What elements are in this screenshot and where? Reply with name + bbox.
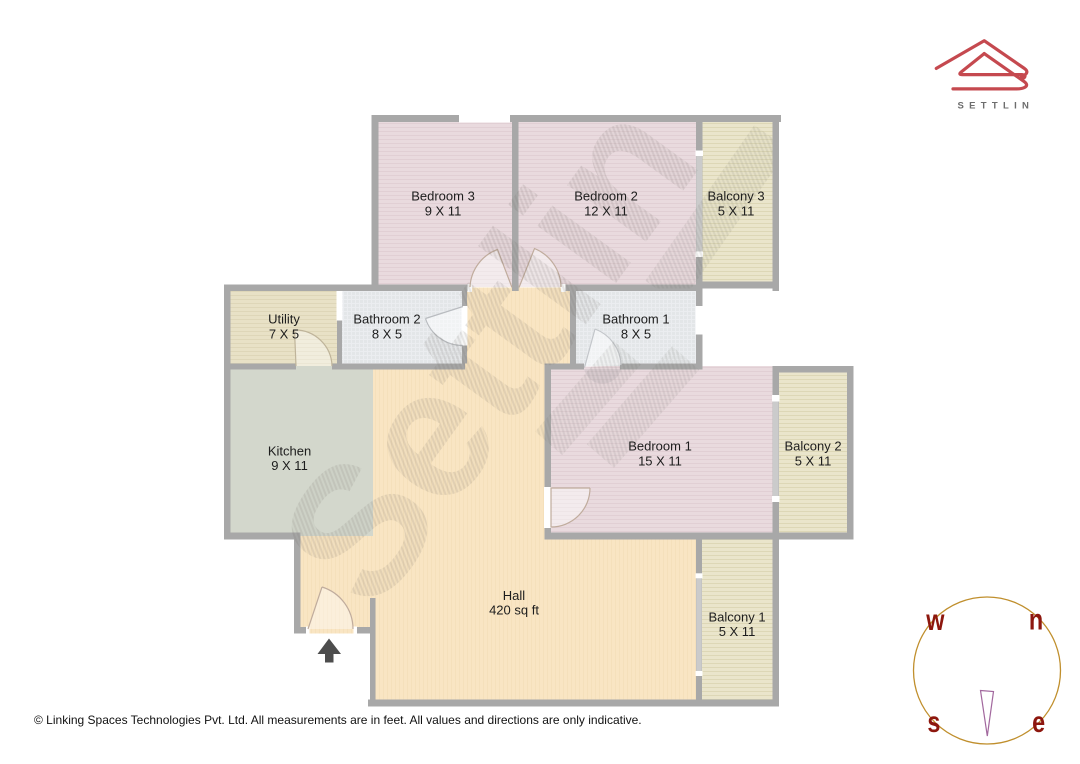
svg-text:5 X 11: 5 X 11 <box>718 204 755 219</box>
svg-text:Kitchen: Kitchen <box>268 444 311 459</box>
svg-text:Hall: Hall <box>503 588 526 603</box>
svg-text:420 sq ft: 420 sq ft <box>489 603 539 618</box>
svg-text:7 X 5: 7 X 5 <box>269 327 299 342</box>
svg-text:Utility: Utility <box>268 312 300 327</box>
svg-text:9 X 11: 9 X 11 <box>425 204 462 219</box>
svg-text:w: w <box>925 603 944 636</box>
svg-text:Bedroom 3: Bedroom 3 <box>411 189 475 204</box>
svg-text:© Linking Spaces Technologies: © Linking Spaces Technologies Pvt. Ltd. … <box>34 713 642 727</box>
svg-text:8 X 5: 8 X 5 <box>621 327 651 342</box>
svg-text:Balcony 3: Balcony 3 <box>707 189 764 204</box>
svg-text:5 X 11: 5 X 11 <box>795 454 832 469</box>
svg-text:Bedroom 1: Bedroom 1 <box>628 439 692 454</box>
svg-text:Bathroom 2: Bathroom 2 <box>353 312 420 327</box>
svg-text:s: s <box>927 705 940 738</box>
svg-text:n: n <box>1029 603 1043 636</box>
svg-text:12 X 11: 12 X 11 <box>584 204 628 219</box>
svg-text:5 X 11: 5 X 11 <box>719 624 756 639</box>
svg-text:Balcony 1: Balcony 1 <box>708 610 765 625</box>
svg-text:Balcony 2: Balcony 2 <box>784 439 841 454</box>
svg-text:e: e <box>1032 705 1045 738</box>
svg-text:9 X 11: 9 X 11 <box>271 458 308 473</box>
svg-text:15 X 11: 15 X 11 <box>638 454 682 469</box>
svg-text:8 X 5: 8 X 5 <box>372 327 402 342</box>
svg-text:SETTLIN: SETTLIN <box>958 101 1035 112</box>
svg-text:Bedroom 2: Bedroom 2 <box>574 189 638 204</box>
svg-text:Bathroom 1: Bathroom 1 <box>602 312 669 327</box>
